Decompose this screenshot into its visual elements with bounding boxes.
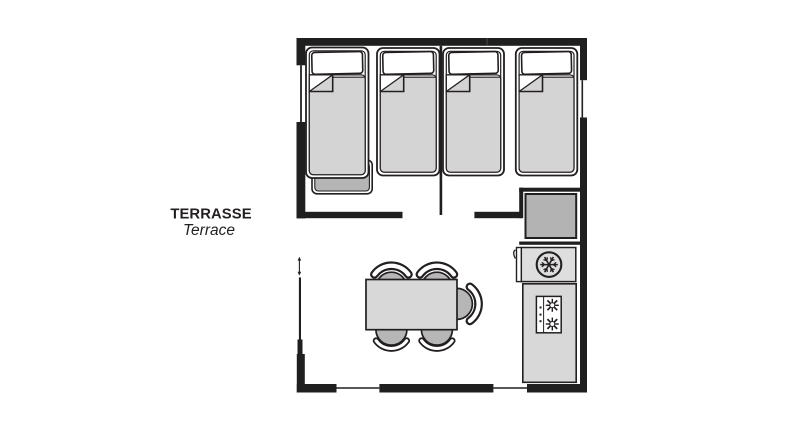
svg-text:Terrace: Terrace [183,222,235,239]
svg-text:TERRASSE: TERRASSE [170,207,251,223]
